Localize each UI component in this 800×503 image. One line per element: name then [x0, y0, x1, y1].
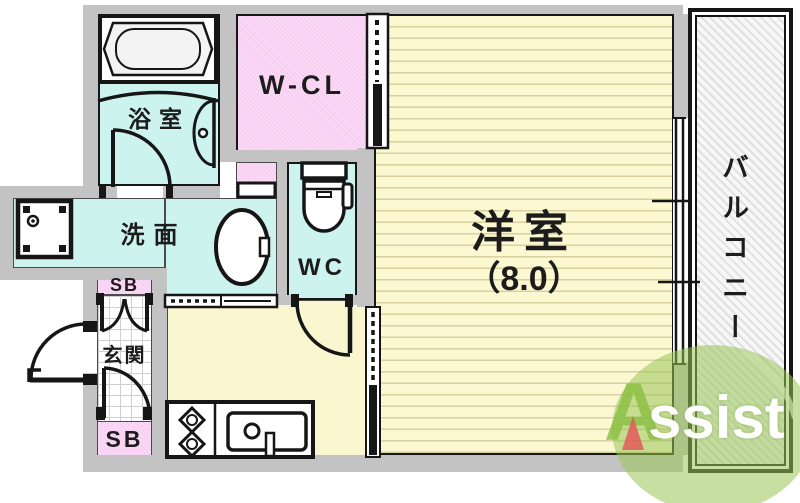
- closet-slide-panel: [238, 183, 275, 197]
- logo-leaf-vein: [742, 352, 795, 418]
- washing-machine-pan: [18, 201, 71, 257]
- bathroom-door: [99, 130, 173, 198]
- closet-sliding-door: [367, 14, 388, 148]
- entrance-door: [29, 321, 97, 385]
- fixtures-layer: [0, 0, 800, 503]
- bathtub: [98, 16, 218, 101]
- shoebox-bottom-door: [96, 368, 152, 420]
- shoebox-top-doors: [96, 293, 153, 331]
- floorplan: 浴室 W-CL 洗面 WC 洋室 （8.0） 玄関 SB SB バルコニー A …: [0, 0, 800, 503]
- sink: [228, 413, 306, 456]
- bathroom-side-door: [194, 98, 214, 168]
- balcony-window: [652, 118, 700, 364]
- kitchen-sliding-door: [366, 307, 380, 457]
- wash-basin: [216, 210, 269, 284]
- washroom-sliding-door: [165, 295, 277, 307]
- toilet: [302, 163, 352, 231]
- wc-door: [291, 294, 353, 355]
